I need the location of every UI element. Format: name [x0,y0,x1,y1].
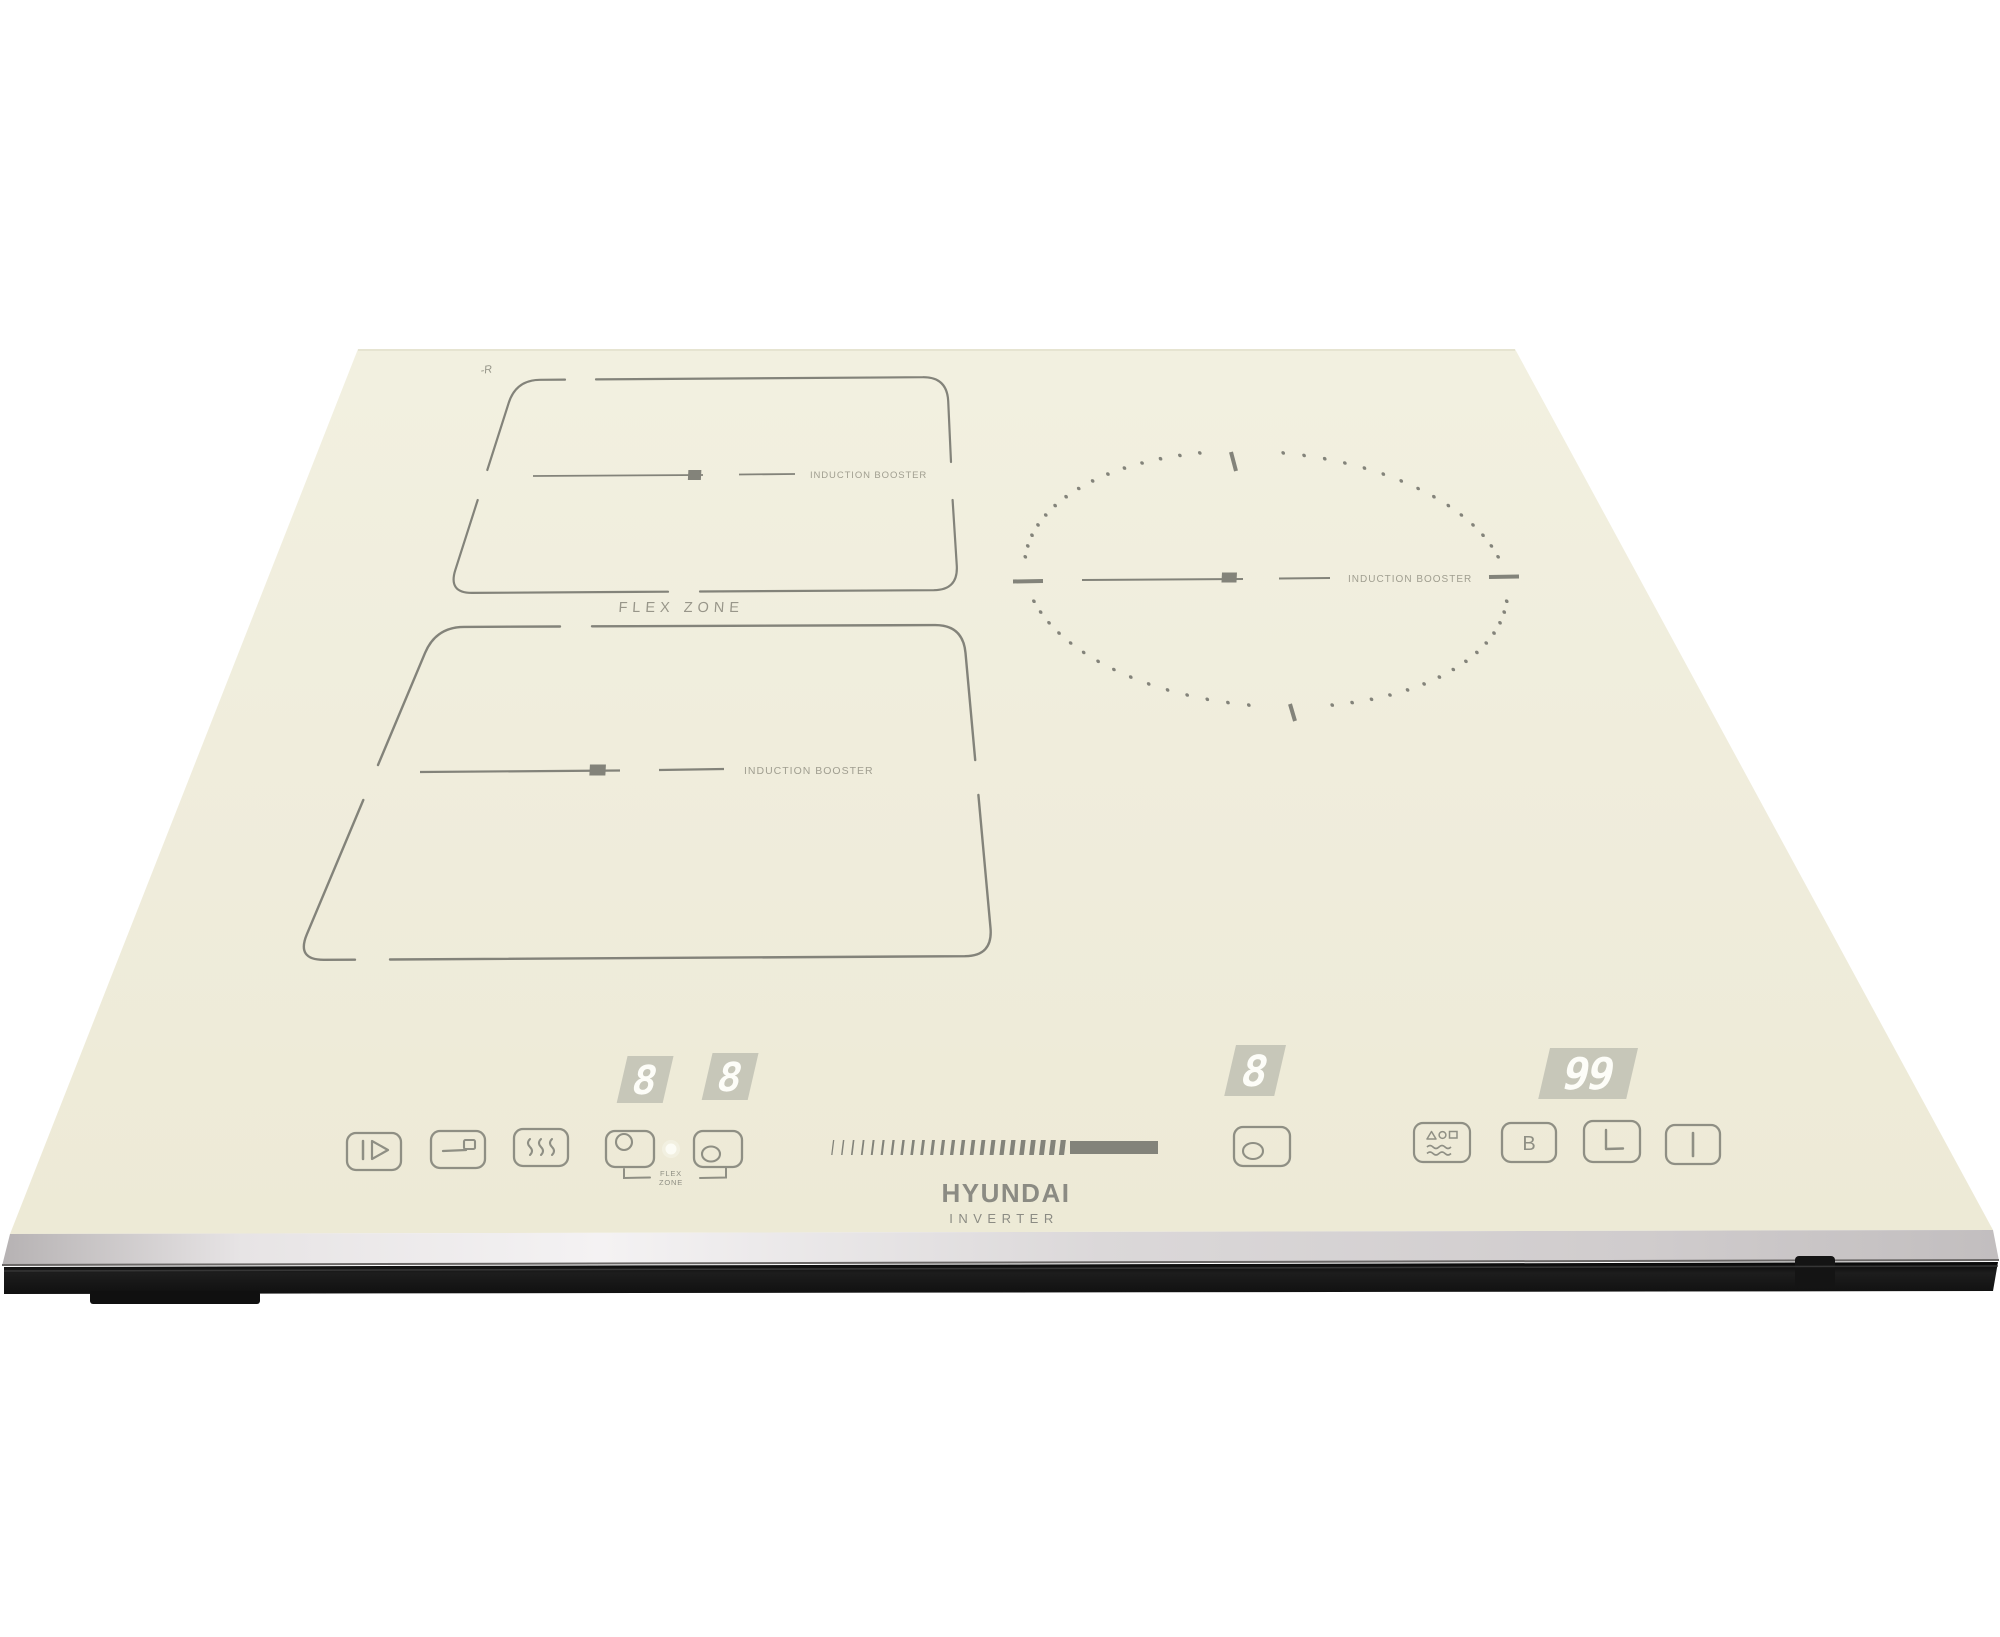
flex-badge-line1: FLEX [660,1169,682,1178]
glass-mark: -R [480,363,493,377]
induction-cooktop: -R INDUCTION BOOSTER FLEX ZONE INDUCTION… [0,0,2000,1637]
brand-sub: INVERTER [949,1211,1059,1226]
timer-display: 99 [1538,1048,1638,1100]
flex-led-indicator-core [666,1144,677,1155]
right-zone-booster-label: INDUCTION BOOSTER [1348,574,1472,585]
flex-rear-booster-label: INDUCTION BOOSTER [810,470,927,481]
cooktop-glass [10,349,1993,1234]
power-slider[interactable] [828,1132,1168,1160]
brand-logo: HYUNDAI [942,1178,1071,1208]
flex-badge-line2: ZONE [659,1178,683,1187]
slider-filled-bar [1070,1141,1158,1154]
base-right-tab [1795,1256,1835,1288]
booster-button-label: B [1522,1133,1535,1155]
product-photo: -R INDUCTION BOOSTER FLEX ZONE INDUCTION… [0,0,2000,1637]
flex-zone-label: FLEX ZONE [618,600,745,616]
base-left-foot [90,1291,260,1304]
flex-front-booster-label: INDUCTION BOOSTER [744,765,874,777]
